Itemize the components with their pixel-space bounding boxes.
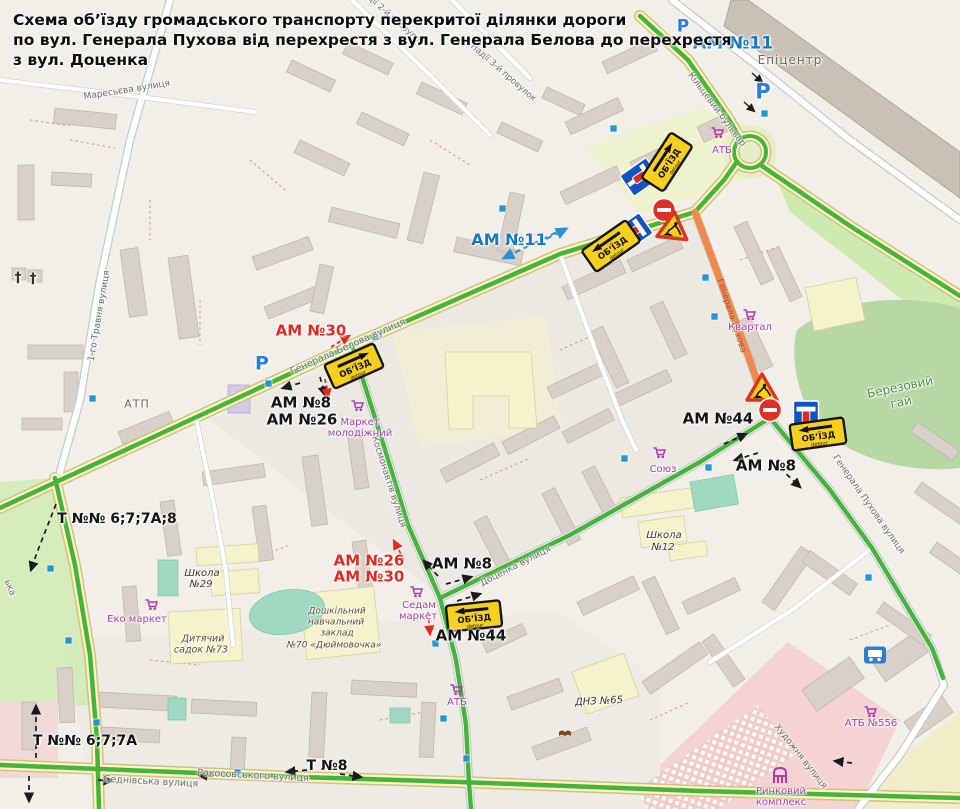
no-entry-sign-2 xyxy=(759,399,782,422)
detour-sign-4 xyxy=(446,600,502,632)
map-title-line-1: Схема об’їзду громадського транспорту пе… xyxy=(13,10,732,30)
map-title: Схема об’їзду громадського транспорту пе… xyxy=(13,10,732,70)
cart-icon-eko-market xyxy=(146,600,158,610)
map-title-line-3: з вул. Доценка xyxy=(13,50,732,70)
bus-station-icon xyxy=(864,647,886,664)
cart-icon-sedam xyxy=(411,587,423,597)
map-title-line-2: по вул. Генерала Пухова від перехрестя з… xyxy=(13,30,732,50)
detour-scheme-map: ОБ’ЇЗД detour ОБ’ЇЗД detour xyxy=(0,0,960,809)
map-base: ОБ’ЇЗД detour ОБ’ЇЗД detour xyxy=(0,0,960,809)
